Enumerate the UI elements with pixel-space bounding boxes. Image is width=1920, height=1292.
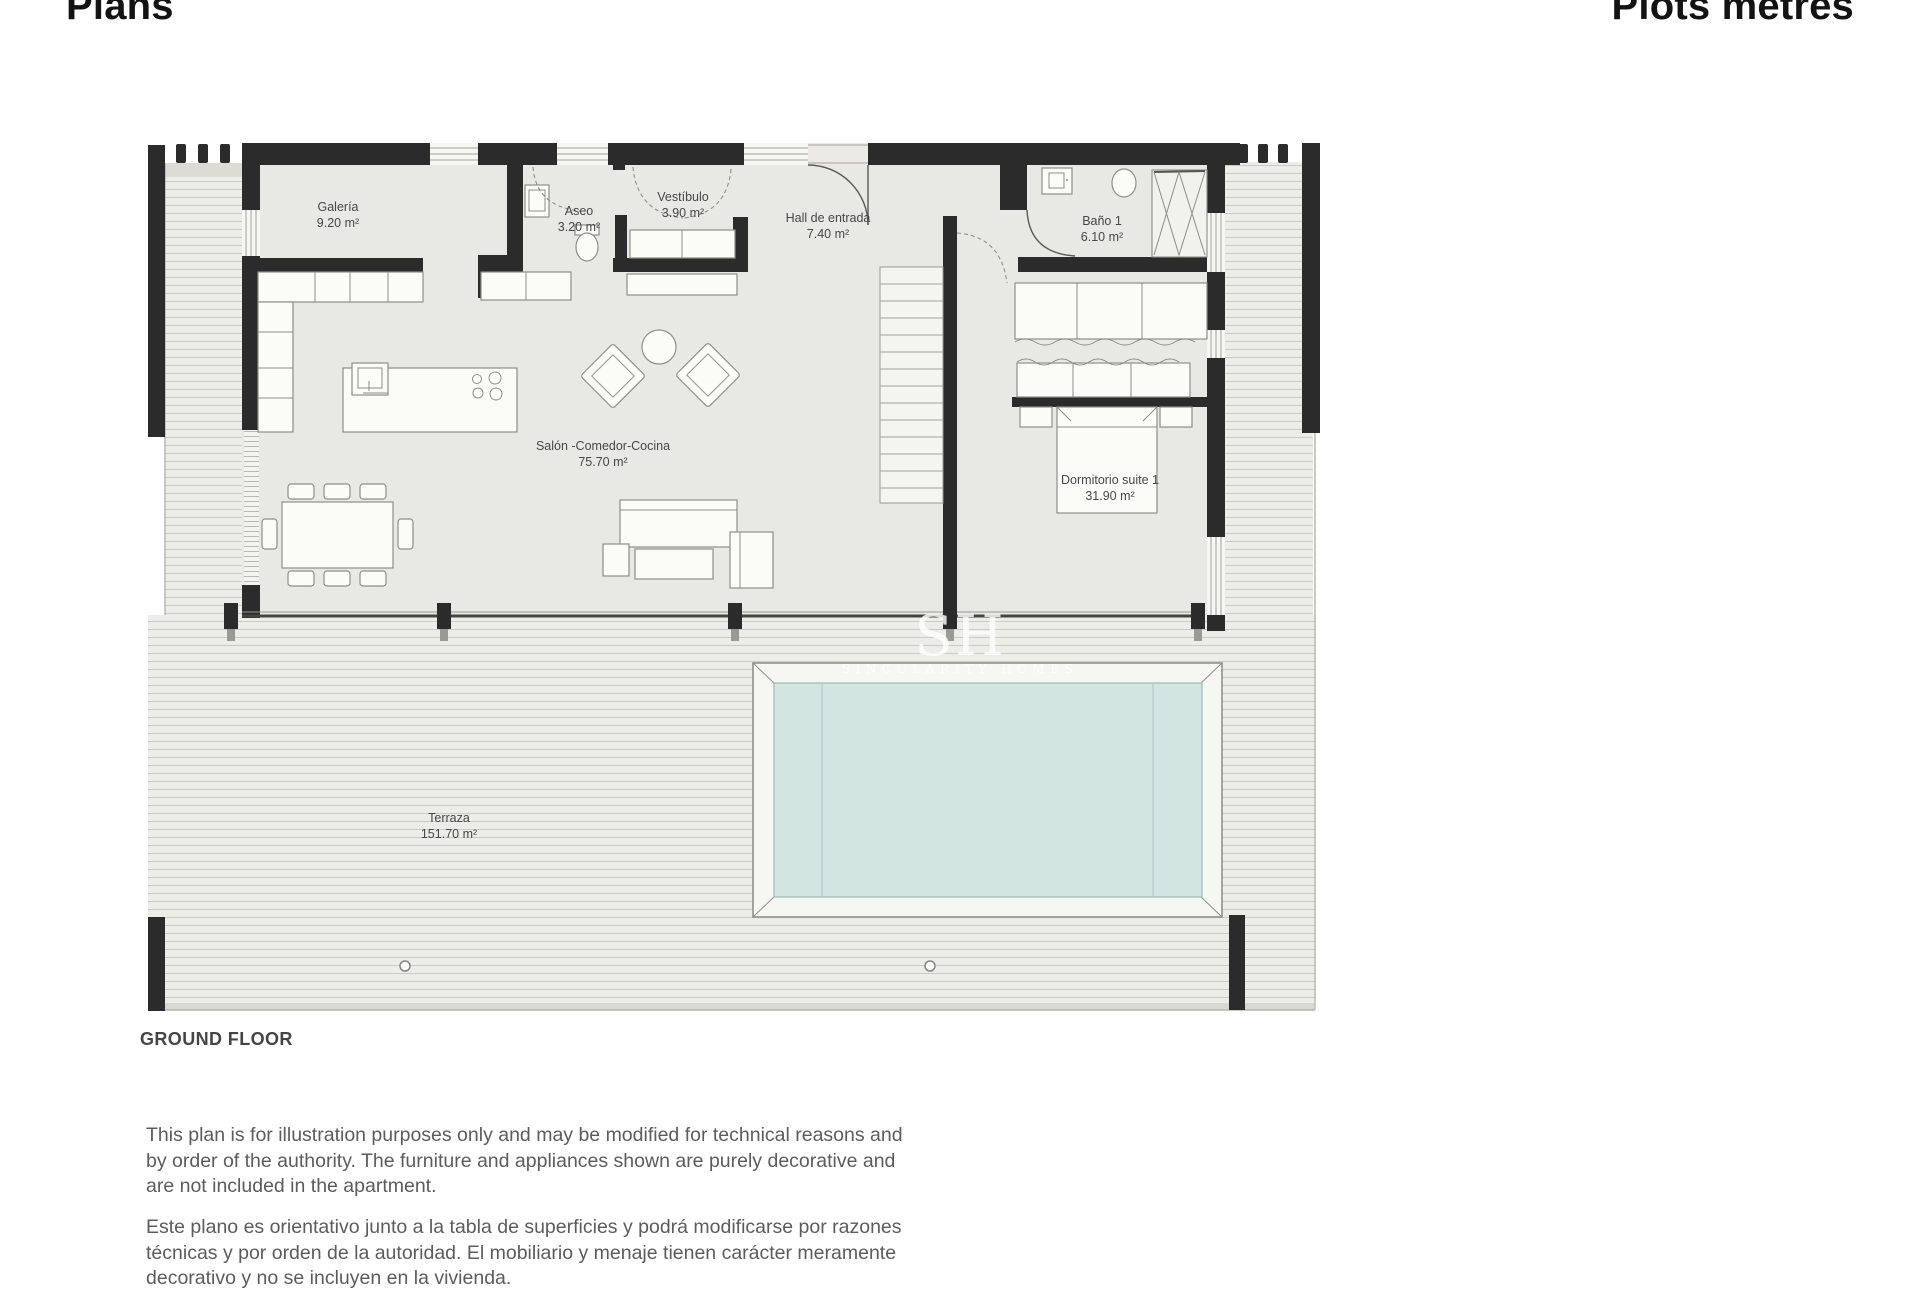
toilet <box>576 233 598 261</box>
watermark-initials: SH <box>914 604 1005 669</box>
floor-plan-drawing: Galería 9.20 m² Aseo 3.20 m² Vestíbulo 3… <box>143 141 1323 1013</box>
kitchen-island <box>343 363 517 432</box>
room-label-vestibulo: Vestíbulo <box>657 190 708 204</box>
side-table <box>603 544 629 576</box>
room-area-vestibulo: 3.90 m² <box>662 206 704 220</box>
room-area-hall: 7.40 m² <box>807 227 849 241</box>
floor-plan: Galería 9.20 m² Aseo 3.20 m² Vestíbulo 3… <box>143 141 1323 1013</box>
disclaimer-es-line: decorativo y no se incluyen en la vivien… <box>146 1266 926 1292</box>
side-table-round <box>642 330 676 364</box>
bano-sink <box>1042 168 1072 194</box>
room-area-bano1: 6.10 m² <box>1081 230 1123 244</box>
window-right-1 <box>1207 213 1225 272</box>
room-area-galeria: 9.20 m² <box>317 216 359 230</box>
window-top-2 <box>557 143 608 165</box>
room-area-salon: 75.70 m² <box>578 455 627 469</box>
window-left-1 <box>242 210 260 256</box>
wardrobe-row <box>1015 283 1207 345</box>
closet-row <box>1017 359 1190 397</box>
page-title: Plans <box>66 0 174 29</box>
nightstand <box>1160 407 1192 427</box>
window-left-2 <box>244 430 259 585</box>
plan-caption: GROUND FLOOR <box>140 1029 293 1050</box>
disclaimer-es-line: Este plano es orientativo junto a la tab… <box>146 1215 926 1241</box>
disclaimer-es: Este plano es orientativo junto a la tab… <box>146 1215 926 1292</box>
window-top-1 <box>430 143 478 165</box>
room-label-terraza: Terraza <box>428 811 470 825</box>
window-right-2 <box>1207 330 1225 358</box>
bano-basin <box>1112 169 1136 197</box>
lounge-chair <box>730 532 773 588</box>
shower <box>1152 170 1207 257</box>
disclaimer-en-line: by order of the authority. The furniture… <box>146 1149 926 1175</box>
window-right-3 <box>1207 537 1225 615</box>
staircase <box>880 267 943 503</box>
room-area-dormitorio: 31.90 m² <box>1085 489 1134 503</box>
deck-top-band <box>165 163 242 177</box>
room-label-galeria: Galería <box>318 200 359 214</box>
room-label-dormitorio: Dormitorio suite 1 <box>1061 473 1159 487</box>
room-label-hall: Hall de entrada <box>786 211 871 225</box>
page-title-right: Plots metres <box>1612 0 1855 29</box>
pool-water <box>774 683 1202 897</box>
room-label-salon: Salón -Comedor-Cocina <box>536 439 670 453</box>
room-label-bano1: Baño 1 <box>1082 214 1122 228</box>
watermark-name: SINGULARITY HOMES <box>842 662 1078 676</box>
disclaimer-es-line: técnicas y por orden de la autoridad. El… <box>146 1241 926 1267</box>
disclaimer-en-line: This plan is for illustration purposes o… <box>146 1123 926 1149</box>
nightstand <box>1020 407 1052 427</box>
room-label-aseo: Aseo <box>565 204 594 218</box>
window-top-3 <box>744 143 808 165</box>
coffee-table <box>635 549 713 579</box>
pool <box>753 663 1222 917</box>
room-area-aseo: 3.20 m² <box>558 220 600 234</box>
sideboard <box>627 274 737 295</box>
room-area-terraza: 151.70 m² <box>421 827 477 841</box>
sofa <box>620 500 737 547</box>
disclaimer-en-line: are not included in the apartment. <box>146 1174 926 1200</box>
disclaimer-en: This plan is for illustration purposes o… <box>146 1123 926 1200</box>
